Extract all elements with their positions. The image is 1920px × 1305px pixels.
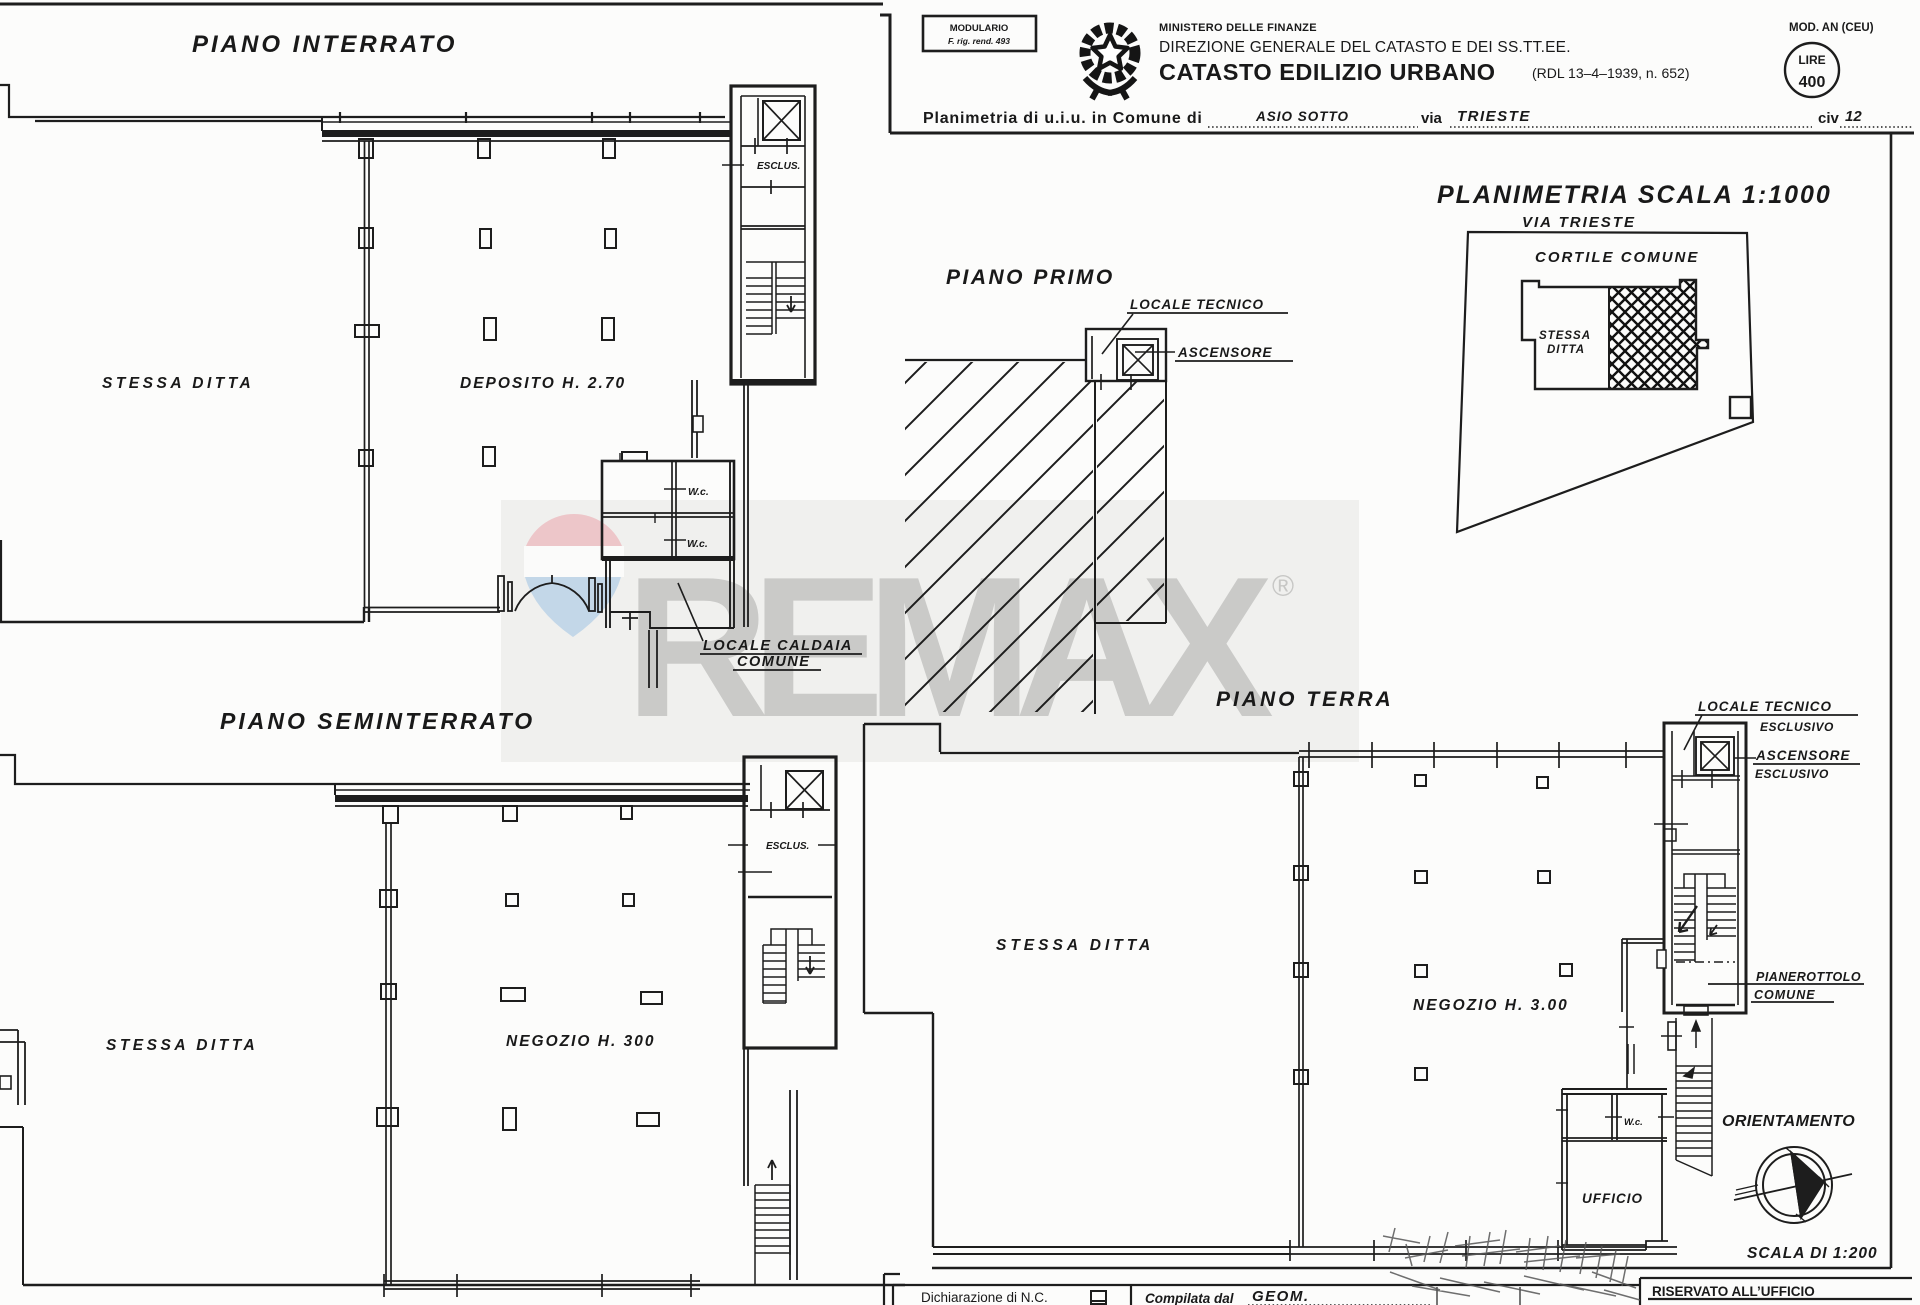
svg-text:via: via <box>1421 110 1443 127</box>
svg-text:PLANIMETRIA SCALA 1:1000: PLANIMETRIA SCALA 1:1000 <box>1437 181 1832 209</box>
svg-text:STESSA: STESSA <box>1539 330 1591 342</box>
svg-text:RISERVATO ALL’UFFICIO: RISERVATO ALL’UFFICIO <box>1652 1284 1815 1299</box>
svg-text:ESCLUS.: ESCLUS. <box>757 161 800 172</box>
svg-text:CATASTO EDILIZIO URBANO: CATASTO EDILIZIO URBANO <box>1159 59 1496 85</box>
svg-text:COMUNE: COMUNE <box>737 654 810 670</box>
svg-text:TRIESTE: TRIESTE <box>1457 108 1531 125</box>
svg-text:MINISTERO DELLE FINANZE: MINISTERO DELLE FINANZE <box>1159 22 1317 34</box>
svg-text:ASIO SOTTO: ASIO SOTTO <box>1255 109 1349 124</box>
svg-text:®: ® <box>1272 570 1294 603</box>
svg-text:W.c.: W.c. <box>1624 1117 1643 1128</box>
svg-text:ESCLUS.: ESCLUS. <box>766 841 809 852</box>
svg-text:NEGOZIO H. 300: NEGOZIO H. 300 <box>506 1033 655 1050</box>
svg-text:LOCALE TECNICO: LOCALE TECNICO <box>1130 297 1264 312</box>
svg-text:GEOM.: GEOM. <box>1252 1288 1310 1305</box>
svg-text:CORTILE COMUNE: CORTILE COMUNE <box>1535 249 1699 266</box>
svg-text:DEPOSITO H. 2.70: DEPOSITO H. 2.70 <box>460 375 626 392</box>
svg-text:civ: civ <box>1818 110 1840 127</box>
svg-text:DITTA: DITTA <box>1547 344 1585 356</box>
svg-text:PIANO INTERRATO: PIANO INTERRATO <box>192 31 457 58</box>
svg-text:LOCALE TECNICO: LOCALE TECNICO <box>1698 699 1832 714</box>
svg-text:ASCENSORE: ASCENSORE <box>1755 748 1851 763</box>
svg-text:VIA TRIESTE: VIA TRIESTE <box>1522 214 1636 231</box>
svg-text:STESSA DITTA: STESSA DITTA <box>102 375 254 392</box>
svg-text:MODULARIO: MODULARIO <box>950 23 1009 34</box>
svg-text:PIANO SEMINTERRATO: PIANO SEMINTERRATO <box>220 708 535 734</box>
svg-text:STESSA DITTA: STESSA DITTA <box>106 1037 258 1054</box>
svg-text:NEGOZIO H. 3.00: NEGOZIO H. 3.00 <box>1413 997 1569 1014</box>
svg-text:(RDL 13–4–1939, n. 652): (RDL 13–4–1939, n. 652) <box>1532 65 1689 81</box>
svg-text:ASCENSORE: ASCENSORE <box>1177 345 1273 360</box>
svg-text:W.c.: W.c. <box>688 486 709 498</box>
svg-text:ORIENTAMENTO: ORIENTAMENTO <box>1722 1113 1855 1130</box>
svg-text:400: 400 <box>1799 74 1826 91</box>
svg-text:ESCLUSIVO: ESCLUSIVO <box>1760 720 1834 734</box>
svg-text:LIRE: LIRE <box>1798 53 1825 67</box>
svg-text:LOCALE CALDAIA: LOCALE CALDAIA <box>703 638 853 654</box>
svg-text:Planimetria di u.i.u. in Comun: Planimetria di u.i.u. in Comune di <box>923 110 1203 127</box>
svg-text:STESSA DITTA: STESSA DITTA <box>996 937 1154 954</box>
svg-text:MOD. AN (CEU): MOD. AN (CEU) <box>1789 22 1874 34</box>
svg-text:UFFICIO: UFFICIO <box>1582 1191 1643 1206</box>
svg-text:W.c.: W.c. <box>687 538 708 550</box>
svg-text:PIANO PRIMO: PIANO PRIMO <box>946 266 1115 289</box>
svg-text:Compilata dal: Compilata dal <box>1145 1291 1234 1305</box>
svg-text:12: 12 <box>1845 108 1862 125</box>
svg-text:ESCLUSIVO: ESCLUSIVO <box>1755 767 1829 781</box>
svg-text:DIREZIONE GENERALE DEL CATASTO: DIREZIONE GENERALE DEL CATASTO E DEI SS.… <box>1159 39 1571 56</box>
svg-text:F. rig. rend. 493: F. rig. rend. 493 <box>948 36 1010 46</box>
svg-text:COMUNE: COMUNE <box>1754 988 1816 1002</box>
svg-text:PIANO TERRA: PIANO TERRA <box>1216 688 1394 711</box>
svg-text:Dichiarazione di N.C.: Dichiarazione di N.C. <box>921 1290 1048 1305</box>
svg-text:SCALA DI 1:200: SCALA DI 1:200 <box>1747 1245 1878 1262</box>
svg-text:PIANEROTTOLO: PIANEROTTOLO <box>1756 970 1861 984</box>
